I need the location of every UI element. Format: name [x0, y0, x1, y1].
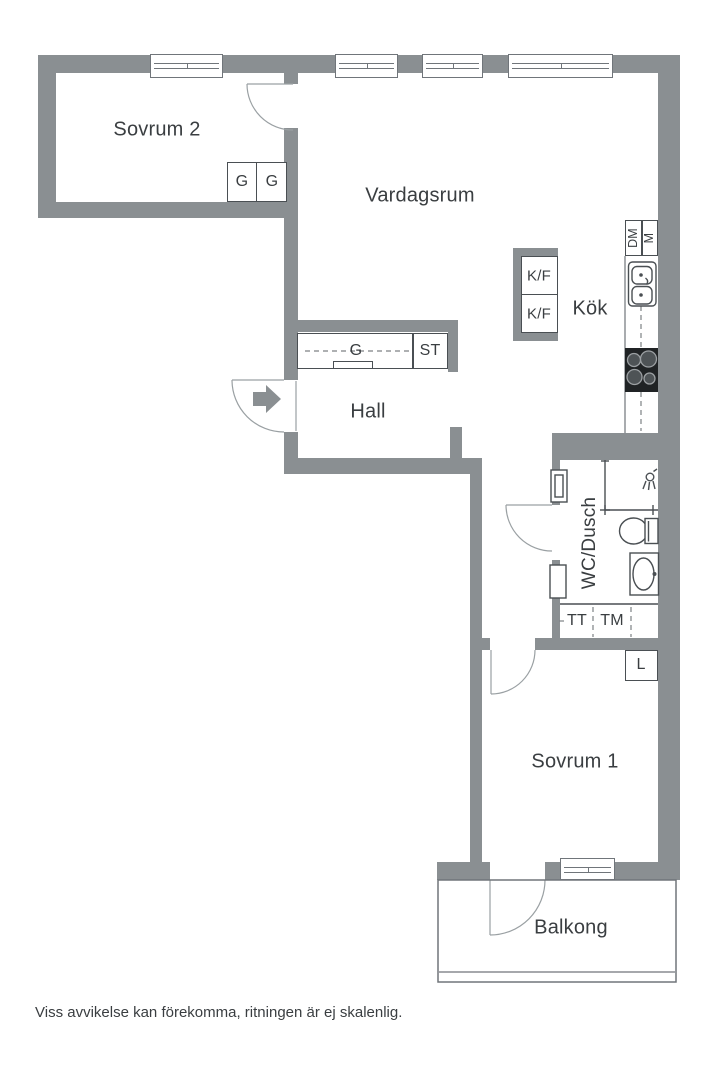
room-label-bathroom: WC/Dusch	[579, 497, 601, 589]
room-label-living: Vardagsrum	[365, 185, 474, 208]
room-label-kitchen: Kök	[572, 298, 607, 321]
wall-hall-se-stub	[450, 427, 462, 458]
wall-bedroom2-bottom	[38, 202, 298, 218]
washbasin-icon	[630, 553, 659, 595]
disclaimer-text: Viss avvikelse kan förekomma, ritningen …	[35, 1004, 402, 1021]
wall-bedroom1-bottom-west	[437, 862, 490, 880]
hall-closet-notch	[333, 361, 373, 369]
window-bedroom2	[150, 54, 223, 78]
wall-bath-west-upper	[552, 460, 560, 505]
room-label-bedroom2: Sovrum 2	[113, 119, 200, 142]
window-mullion	[187, 63, 188, 69]
room-label-hall: Hall	[350, 401, 385, 424]
fridge-unit-frame-left	[513, 248, 521, 341]
fridge-unit-frame-bottom	[513, 333, 558, 341]
window-balcony	[560, 858, 615, 880]
wall-bedroom1-top-east	[535, 638, 658, 650]
door-bedroom1	[491, 650, 535, 694]
wall-hall-bottom	[284, 458, 482, 474]
wall-living-hall-divider	[284, 320, 458, 332]
toilet-icon	[620, 518, 659, 544]
wall-bedroom1-top-west	[482, 638, 490, 650]
label-hall-wardrobe: G	[350, 342, 363, 360]
stove-icon	[625, 348, 658, 392]
kitchen-sink-icon	[629, 262, 657, 306]
label-dryer: TT	[567, 612, 587, 630]
window-living-1	[335, 54, 398, 78]
wall-bedroom1-bottom-east	[615, 862, 680, 880]
fridge-unit-frame-top	[513, 248, 558, 256]
shower-head-icon	[643, 469, 657, 490]
shower-area	[600, 460, 658, 515]
window-mullion	[561, 63, 562, 69]
label-wardrobe-a: G	[236, 173, 249, 191]
label-wardrobe-b: G	[266, 173, 279, 191]
door-bedroom2	[247, 84, 293, 130]
wall-bath-west-lower	[552, 560, 560, 638]
wall-bedroom1-bottom-mid	[545, 862, 560, 880]
label-washing-machine: TM	[600, 612, 624, 630]
door-bathroom	[506, 505, 552, 551]
window-mullion	[367, 63, 368, 69]
wall-st-closet-side	[448, 332, 458, 372]
fixtures-overlay	[0, 0, 720, 1080]
floorplan-canvas: Sovrum 2 Vardagsrum Kök Hall WC/Dusch So…	[0, 0, 720, 1080]
label-dishwasher: DM	[626, 228, 640, 248]
wall-left	[38, 55, 56, 218]
label-fridge: K/F	[527, 268, 551, 285]
label-linen-cabinet: L	[636, 656, 645, 674]
room-label-bedroom1: Sovrum 1	[531, 751, 618, 774]
window-mullion	[588, 867, 589, 873]
label-microwave: M	[642, 233, 656, 244]
wall-east	[658, 55, 680, 880]
room-label-balcony: Balkong	[534, 917, 608, 940]
window-living-2	[422, 54, 483, 78]
door-entry	[232, 380, 296, 432]
label-freezer: K/F	[527, 306, 551, 323]
wall-west-lower	[470, 474, 482, 880]
wall-bedroom2-door-stub	[284, 72, 298, 84]
window-living-3	[508, 54, 613, 78]
hall-closet-divider	[412, 333, 414, 369]
window-mullion	[453, 63, 454, 69]
label-cleaning-cabinet: ST	[420, 342, 441, 360]
wall-kitchen-bath-divider	[552, 433, 658, 460]
entry-arrow-icon	[253, 385, 281, 413]
